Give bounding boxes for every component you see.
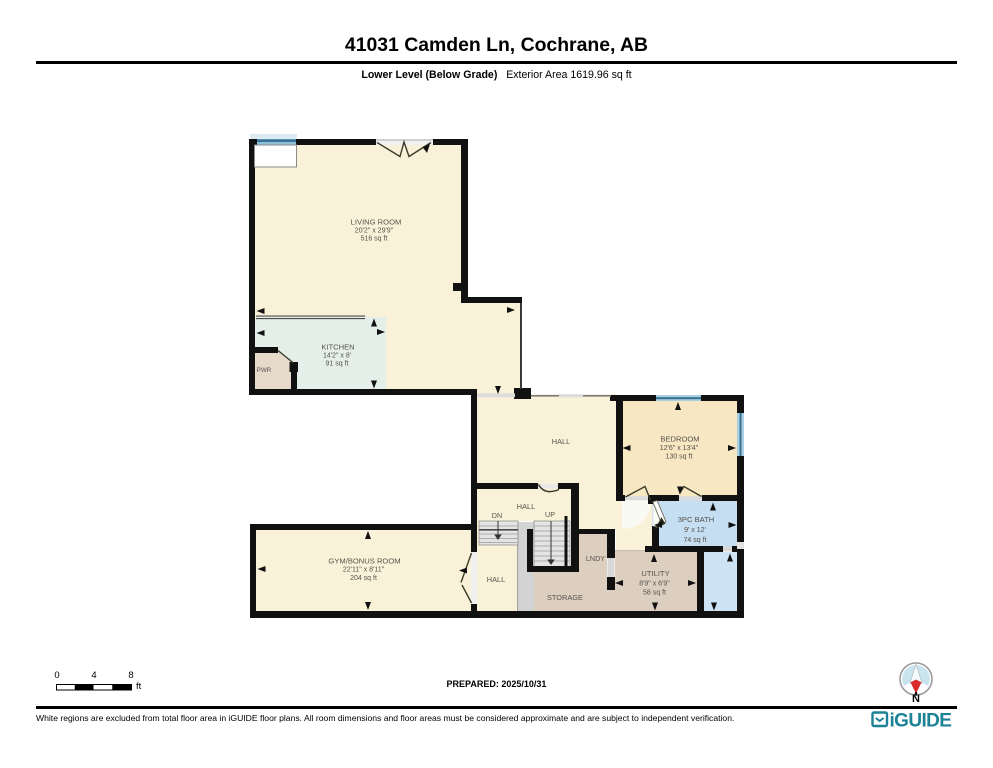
svg-text:204 sq ft: 204 sq ft <box>350 575 377 582</box>
svg-text:KITCHEN: KITCHEN <box>321 343 354 352</box>
svg-text:UTILITY: UTILITY <box>641 569 669 578</box>
svg-text:PWR: PWR <box>257 367 272 374</box>
svg-text:91 sq ft: 91 sq ft <box>326 361 349 368</box>
svg-text:LNDY: LNDY <box>586 554 605 563</box>
svg-text:UP: UP <box>545 510 555 519</box>
svg-text:STORAGE: STORAGE <box>547 593 583 602</box>
svg-text:22'11" x 8'11": 22'11" x 8'11" <box>343 567 385 574</box>
svg-text:9' x 12': 9' x 12' <box>684 527 706 534</box>
svg-text:iGUIDE: iGUIDE <box>890 711 952 732</box>
svg-text:HALL: HALL <box>552 437 571 446</box>
svg-text:58 sq ft: 58 sq ft <box>643 590 666 597</box>
svg-text:DN: DN <box>492 511 502 520</box>
svg-text:14'2" x 8': 14'2" x 8' <box>323 353 351 360</box>
svg-text:130 sq ft: 130 sq ft <box>666 454 693 461</box>
svg-text:LIVING ROOM: LIVING ROOM <box>351 218 402 227</box>
svg-text:8'9" x 6'9": 8'9" x 6'9" <box>639 581 670 588</box>
svg-text:74 sq ft: 74 sq ft <box>684 537 707 544</box>
svg-text:12'6" x 13'4": 12'6" x 13'4" <box>660 445 699 452</box>
svg-text:BEDROOM: BEDROOM <box>660 435 699 444</box>
svg-text:516 sq ft: 516 sq ft <box>361 236 388 243</box>
svg-text:HALL: HALL <box>487 575 506 584</box>
svg-text:20'2" x 29'9": 20'2" x 29'9" <box>355 228 394 235</box>
svg-text:GYM/BONUS ROOM: GYM/BONUS ROOM <box>328 557 400 566</box>
svg-text:3PC BATH: 3PC BATH <box>678 515 715 524</box>
svg-text:HALL: HALL <box>517 502 536 511</box>
